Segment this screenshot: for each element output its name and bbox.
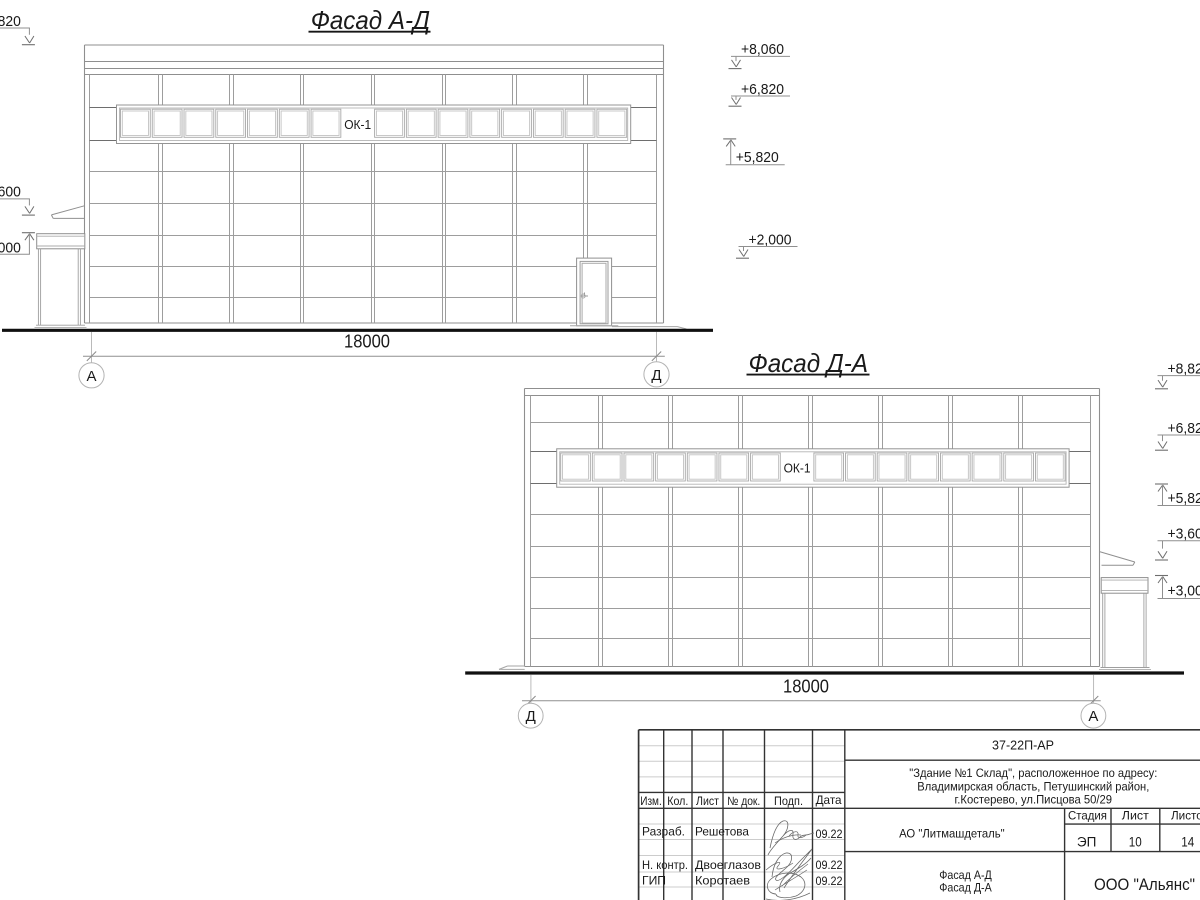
svg-text:АО "Литмашдеталь": АО "Литмашдеталь": [899, 827, 1005, 841]
svg-text:37-22П-АР: 37-22П-АР: [992, 738, 1054, 753]
svg-text:Фасад Д-А: Фасад Д-А: [749, 348, 869, 378]
svg-text:Фасад Д-А: Фасад Д-А: [939, 881, 992, 895]
svg-text:+2,000: +2,000: [749, 231, 792, 248]
svg-text:г.Костерево, ул.Писцова 50/29: г.Костерево, ул.Писцова 50/29: [955, 792, 1113, 806]
svg-text:09.22: 09.22: [816, 827, 843, 841]
svg-text:+8,820: +8,820: [0, 13, 21, 30]
svg-text:ГИП: ГИП: [642, 874, 666, 888]
svg-text:+3,000: +3,000: [1168, 583, 1200, 600]
svg-text:ЭП: ЭП: [1077, 835, 1097, 850]
svg-text:+5,820: +5,820: [1168, 490, 1200, 507]
svg-text:18000: 18000: [783, 676, 829, 696]
svg-text:Разраб.: Разраб.: [642, 825, 685, 839]
svg-text:Дата: Дата: [816, 793, 842, 807]
svg-text:+3,600: +3,600: [0, 184, 21, 201]
svg-text:+6,820: +6,820: [741, 81, 784, 98]
svg-text:10: 10: [1129, 835, 1142, 850]
svg-text:А: А: [86, 368, 96, 385]
svg-text:Подп.: Подп.: [774, 794, 803, 808]
svg-text:"Здание №1 Склад", расположенн: "Здание №1 Склад", расположенное по адре…: [909, 766, 1157, 780]
svg-text:Лист: Лист: [696, 794, 719, 808]
svg-text:Д: Д: [651, 367, 661, 384]
svg-text:+8,820: +8,820: [1168, 360, 1200, 377]
svg-text:Д: Д: [526, 708, 536, 725]
svg-text:14: 14: [1181, 835, 1194, 850]
svg-text:Кол.: Кол.: [667, 794, 688, 808]
svg-text:ООО "Альянс": ООО "Альянс": [1094, 876, 1195, 894]
svg-text:+3,000: +3,000: [0, 239, 21, 256]
svg-text:Двоеглазов: Двоеглазов: [695, 858, 761, 872]
svg-text:Коротаев: Коротаев: [695, 874, 750, 888]
svg-text:Лист: Лист: [1122, 809, 1150, 823]
svg-text:Стадия: Стадия: [1068, 809, 1107, 823]
svg-text:ОК-1: ОК-1: [344, 117, 371, 132]
svg-text:Н. контр.: Н. контр.: [642, 858, 688, 872]
svg-text:+8,060: +8,060: [741, 41, 784, 58]
svg-text:Листов: Листов: [1171, 809, 1200, 823]
svg-text:+3,600: +3,600: [1168, 526, 1200, 543]
svg-text:Владимирская область, Петушинс: Владимирская область, Петушинский район,: [917, 779, 1149, 793]
svg-text:Решетова: Решетова: [695, 825, 749, 839]
svg-text:№ док.: № док.: [727, 794, 760, 808]
svg-text:ОК-1: ОК-1: [784, 461, 811, 476]
svg-text:18000: 18000: [344, 332, 390, 352]
svg-text:+5,820: +5,820: [736, 149, 779, 166]
svg-text:09.22: 09.22: [816, 874, 843, 888]
svg-text:Фасад А-Д: Фасад А-Д: [311, 5, 430, 35]
svg-text:+6,820: +6,820: [1168, 420, 1200, 437]
svg-text:09.22: 09.22: [816, 858, 843, 872]
svg-text:А: А: [1088, 708, 1098, 725]
svg-text:Изм.: Изм.: [640, 794, 662, 808]
